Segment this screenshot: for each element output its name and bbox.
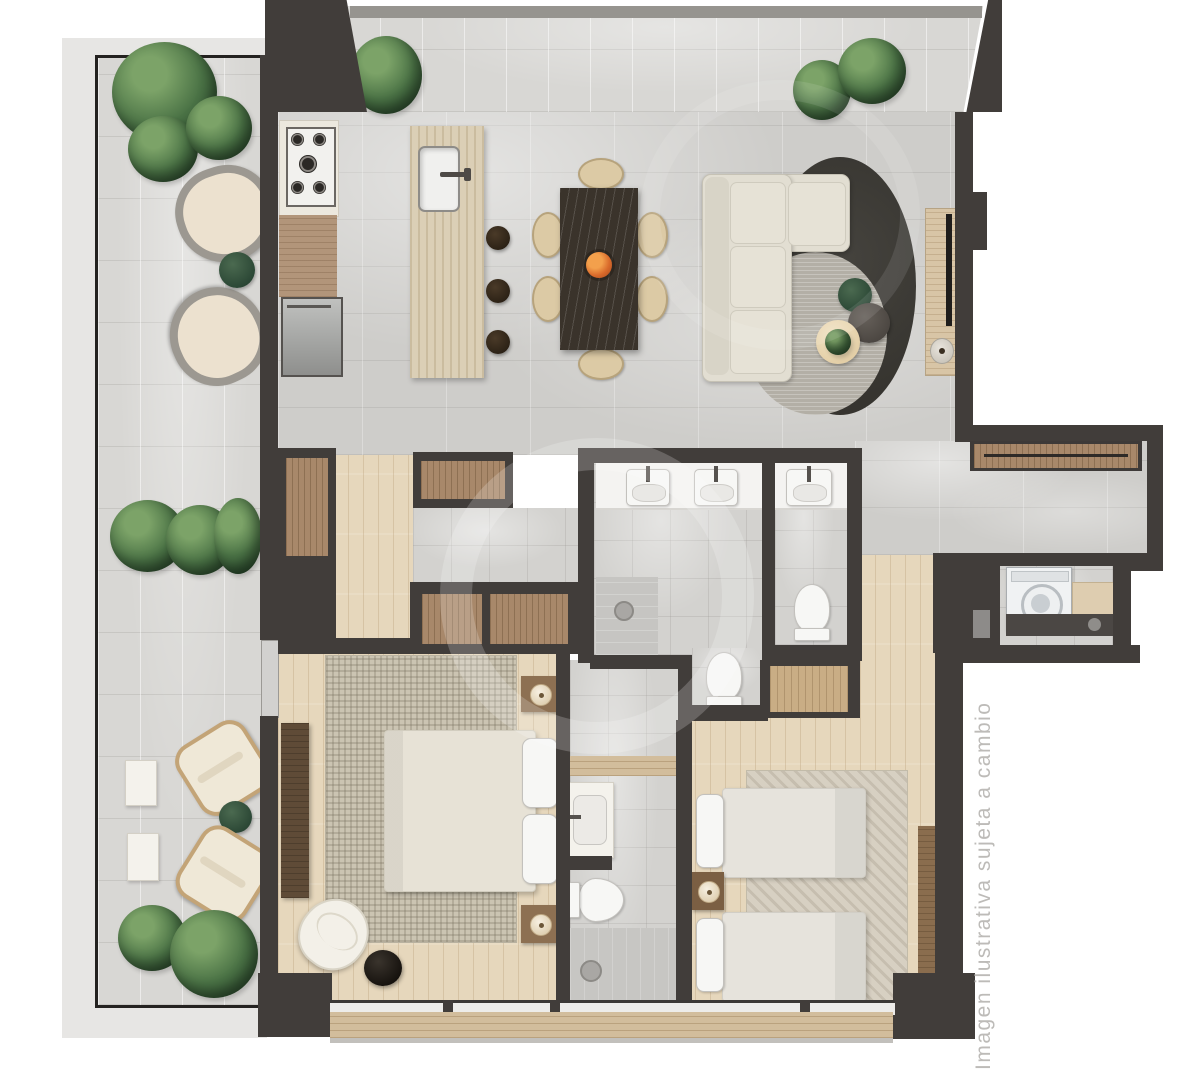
- side-table-black-icon: [364, 950, 402, 986]
- wall-ensuite-left: [556, 650, 570, 1040]
- island-sink-icon: [418, 146, 460, 212]
- washer-panel: [1011, 571, 1069, 582]
- wardrobe-slider-line: [984, 454, 1128, 457]
- table-lamp-icon: [530, 914, 552, 936]
- wall-laundry-bottom: [955, 645, 1140, 663]
- wall-block-hall: [278, 566, 336, 642]
- wall-corridor-right: [1147, 425, 1163, 571]
- wall-master-top: [278, 638, 413, 654]
- floor-plan: Imagen ilustrativa sujeta a cambio: [0, 0, 1200, 1086]
- sofa-cushion: [730, 182, 786, 244]
- closet-doors: [286, 458, 328, 556]
- twin-bed: [722, 912, 866, 1002]
- sofa-cushion: [730, 310, 786, 374]
- burner: [291, 181, 304, 194]
- side-table-icon: [125, 760, 157, 806]
- plant-icon: [838, 38, 906, 104]
- sofa-backrest: [705, 177, 729, 375]
- bar-stool-icon: [486, 226, 510, 250]
- hall-closet-left: [278, 448, 336, 566]
- wall-corridor-top: [955, 425, 1163, 441]
- watermark-caption: Imagen ilustrativa sujeta a cambio: [972, 695, 996, 1070]
- burner: [313, 181, 326, 194]
- balcony-edge: [350, 6, 982, 18]
- faucet-icon: [714, 466, 718, 482]
- wall-ensuite-right: [676, 720, 692, 1040]
- dressing-walkway-floor: [413, 508, 595, 584]
- sink-icon: [786, 469, 832, 506]
- terrace-door: [261, 640, 279, 718]
- dining-chair-icon: [578, 348, 624, 380]
- nightstand: [521, 676, 559, 712]
- bottom-balcony-strip: [330, 1012, 893, 1038]
- dining-chair-icon: [578, 158, 624, 190]
- burner: [299, 155, 317, 173]
- dining-chair-icon: [636, 212, 668, 258]
- shower-drain-icon: [614, 601, 634, 621]
- tv-icon: [946, 214, 952, 326]
- sofa-chaise-cushion: [788, 182, 846, 246]
- wall-bath-left: [578, 448, 594, 663]
- wall-console: [918, 826, 936, 974]
- wall-bath-top: [578, 448, 862, 463]
- wall-laundry-right: [1113, 553, 1131, 653]
- wall-laundry-left: [933, 553, 1000, 653]
- double-bed: [384, 730, 536, 892]
- toilet-tank: [794, 628, 830, 641]
- nightstand: [521, 905, 559, 943]
- ensuite-vanity: [564, 782, 614, 858]
- plant-icon: [186, 96, 252, 160]
- toilet-icon: [706, 652, 742, 700]
- coffee-table-plant-icon: [816, 320, 860, 364]
- laundry-counter: [1072, 582, 1118, 616]
- faucet-icon: [646, 466, 650, 482]
- sink-icon: [694, 469, 738, 506]
- pillow-icon: [522, 814, 558, 884]
- corridor-wardrobe: [970, 441, 1142, 471]
- fruit-bowl-icon: [586, 252, 612, 278]
- table-lamp-icon: [698, 881, 720, 903]
- garden-table-icon: [219, 252, 255, 288]
- dresser-console: [281, 723, 309, 898]
- wall-shower-bottom: [590, 655, 690, 669]
- sink-basin: [573, 795, 607, 845]
- fridge-handle: [287, 305, 331, 308]
- laundry-front-counter: [1006, 614, 1116, 636]
- pillow-icon: [522, 738, 558, 808]
- laundry-door-panel: [973, 610, 990, 638]
- hall-closet-upper: [413, 452, 513, 508]
- wall-laundry-top: [998, 553, 1116, 566]
- plant-icon: [170, 910, 258, 998]
- shower-floor: [596, 577, 658, 655]
- console-decor-icon: [930, 338, 954, 364]
- burner: [291, 133, 304, 146]
- sink-basin: [793, 484, 827, 502]
- kitchen-worktop-wood: [279, 215, 337, 297]
- burner: [313, 133, 326, 146]
- wall-bottom-right-block: [893, 973, 975, 1039]
- twin-bed: [722, 788, 866, 878]
- wall-right-bump: [973, 192, 987, 250]
- master-wardrobe: [410, 582, 580, 654]
- island-faucet-knob: [464, 168, 471, 181]
- plant-icon: [825, 329, 851, 355]
- ensuite-door-threshold: [562, 756, 676, 776]
- refrigerator-icon: [281, 297, 343, 377]
- second-bedroom-closet: [760, 660, 860, 718]
- wall-guest-bath-bottom: [762, 645, 862, 661]
- chair-seam: [309, 905, 365, 959]
- sink-basin: [632, 484, 666, 502]
- side-table-icon: [127, 833, 159, 881]
- pillow-icon: [696, 918, 724, 992]
- closet-doors: [421, 461, 505, 499]
- bar-stool-icon: [486, 279, 510, 303]
- laundry-sink-icon: [1088, 618, 1101, 631]
- planter-plant-icon: [214, 498, 262, 574]
- table-lamp-icon: [530, 684, 552, 706]
- sofa-cushion: [730, 246, 786, 308]
- bar-stool-icon: [486, 330, 510, 354]
- lounger-fold: [196, 750, 244, 784]
- wardrobe-doors: [422, 594, 482, 644]
- faucet-icon: [807, 466, 811, 482]
- wall-second-bedroom-right: [935, 643, 963, 976]
- wall-bath-right: [847, 448, 862, 658]
- shower-drain-icon: [580, 960, 602, 982]
- toilet-icon: [794, 584, 830, 632]
- wall-bath-divider: [762, 455, 775, 655]
- sink-icon: [626, 469, 670, 506]
- wall-toilet-nook-bottom: [678, 705, 768, 721]
- wall-right-living: [955, 112, 973, 442]
- wall-bottom-left-block: [258, 973, 332, 1037]
- wardrobe-doors: [490, 594, 568, 644]
- wall-left-upper: [260, 55, 278, 640]
- washer-drum: [1031, 594, 1050, 613]
- hallway-floor: [333, 455, 413, 655]
- gas-hob-icon: [286, 127, 336, 207]
- nightstand: [692, 872, 724, 910]
- sink-basin: [700, 484, 734, 502]
- bottom-edge-line: [330, 1038, 893, 1043]
- wall-left-lower: [260, 716, 278, 1016]
- dining-chair-icon: [636, 276, 668, 322]
- lounger-fold: [199, 855, 247, 889]
- decor-dot: [939, 348, 945, 354]
- pillow-icon: [696, 794, 724, 868]
- closet-door: [770, 666, 848, 712]
